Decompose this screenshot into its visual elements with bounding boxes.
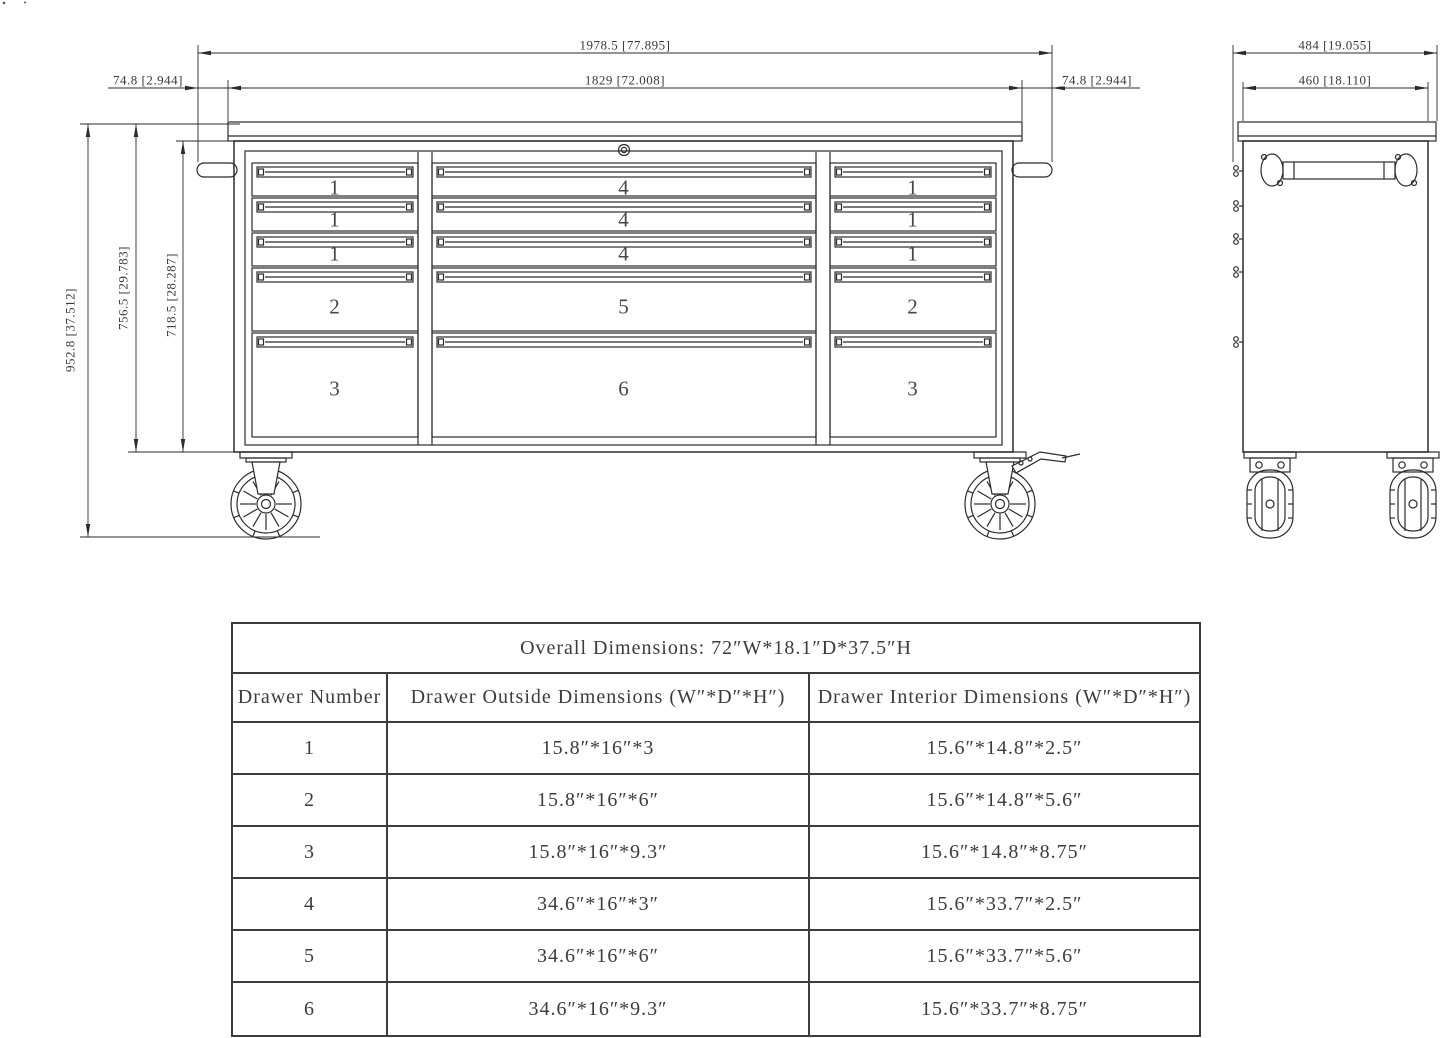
table-cell: 34.6″*16″*6″ xyxy=(388,931,810,983)
drawer-label: 1 xyxy=(907,210,919,231)
dim-drawer-section-height: 718.5 [28.287] xyxy=(165,251,178,339)
drawer-label: 1 xyxy=(329,178,341,199)
front-left-handle xyxy=(197,163,237,177)
front-right-caster xyxy=(965,452,1080,539)
table-cell: 34.6″*16″*3″ xyxy=(388,879,810,931)
table-cell: 15.6″*33.7″*2.5″ xyxy=(810,879,1199,931)
drawer-label: 2 xyxy=(329,297,341,318)
side-worktop xyxy=(1238,122,1436,141)
dim-body-depth: 460 [18.110] xyxy=(1297,74,1374,87)
lock-icon xyxy=(619,145,630,156)
dim-overall-width: 1978.5 [77.895] xyxy=(578,39,673,52)
side-dimensions xyxy=(1233,45,1437,162)
table-cell: 15.8″*16″*6″ xyxy=(388,775,810,827)
spec-table-title: Overall Dimensions: 72″W*18.1″D*37.5″H xyxy=(233,624,1199,674)
dim-right-handle: 74.8 [2.944] xyxy=(1060,74,1134,87)
side-drawer-pull-ends xyxy=(1234,166,1243,348)
table-cell: 3 xyxy=(233,827,388,879)
drawer-label: 5 xyxy=(618,297,630,318)
front-right-handle xyxy=(1012,163,1052,177)
front-view-drawing xyxy=(80,45,1140,539)
drawer-label: 3 xyxy=(329,379,341,400)
dim-body-width: 1829 [72.008] xyxy=(583,74,667,87)
front-dimensions xyxy=(80,45,1140,537)
table-cell: 34.6″*16″*9.3″ xyxy=(388,983,810,1035)
side-body xyxy=(1243,141,1428,452)
brake-lever xyxy=(1012,452,1080,473)
dim-left-handle: 74.8 [2.944] xyxy=(111,74,185,87)
drawer-label: 3 xyxy=(907,379,919,400)
table-cell: 6 xyxy=(233,983,388,1035)
dim-overall-depth: 484 [19.055] xyxy=(1296,39,1373,52)
drawer-label: 1 xyxy=(907,244,919,265)
table-cell: 15.6″*33.7″*5.6″ xyxy=(810,931,1199,983)
table-cell: 15.8″*16″*3 xyxy=(388,723,810,775)
table-cell: 15.6″*14.8″*8.75″ xyxy=(810,827,1199,879)
side-rear-caster xyxy=(1387,452,1439,538)
spec-table: Overall Dimensions: 72″W*18.1″D*37.5″H D… xyxy=(231,622,1201,1037)
drawer-label: 4 xyxy=(618,210,630,231)
side-push-handle xyxy=(1261,154,1417,186)
drawer-label: 6 xyxy=(618,379,630,400)
side-front-caster xyxy=(1244,452,1296,538)
drawer-label: 1 xyxy=(907,178,919,199)
table-cell: 2 xyxy=(233,775,388,827)
side-view-drawing xyxy=(1233,45,1439,538)
table-cell: 1 xyxy=(233,723,388,775)
table-cell: 15.6″*14.8″*2.5″ xyxy=(810,723,1199,775)
dim-cabinet-height: 756.5 [29.783] xyxy=(117,244,130,332)
blueprint-canvas: 1978.5 [77.895] 1829 [72.008] 74.8 [2.94… xyxy=(0,0,1445,1038)
front-worktop xyxy=(228,122,1022,141)
table-cell: 15.8″*16″*9.3″ xyxy=(388,827,810,879)
stray-marks xyxy=(3,2,26,5)
drawer-label: 4 xyxy=(618,178,630,199)
col-header-outside-dimensions: Drawer Outside Dimensions (W″*D″*H″) xyxy=(388,674,810,723)
drawer-label: 1 xyxy=(329,244,341,265)
front-left-caster xyxy=(231,452,301,539)
table-cell: 5 xyxy=(233,931,388,983)
drawer-label: 4 xyxy=(618,244,630,265)
table-cell: 15.6″*14.8″*5.6″ xyxy=(810,775,1199,827)
table-cell: 4 xyxy=(233,879,388,931)
dim-overall-height: 952.8 [37.512] xyxy=(64,286,77,374)
col-header-interior-dimensions: Drawer Interior Dimensions (W″*D″*H″) xyxy=(810,674,1199,723)
col-header-drawer-number: Drawer Number xyxy=(233,674,388,723)
table-cell: 15.6″*33.7″*8.75″ xyxy=(810,983,1199,1035)
drawer-label: 2 xyxy=(907,297,919,318)
drawer-label: 1 xyxy=(329,210,341,231)
